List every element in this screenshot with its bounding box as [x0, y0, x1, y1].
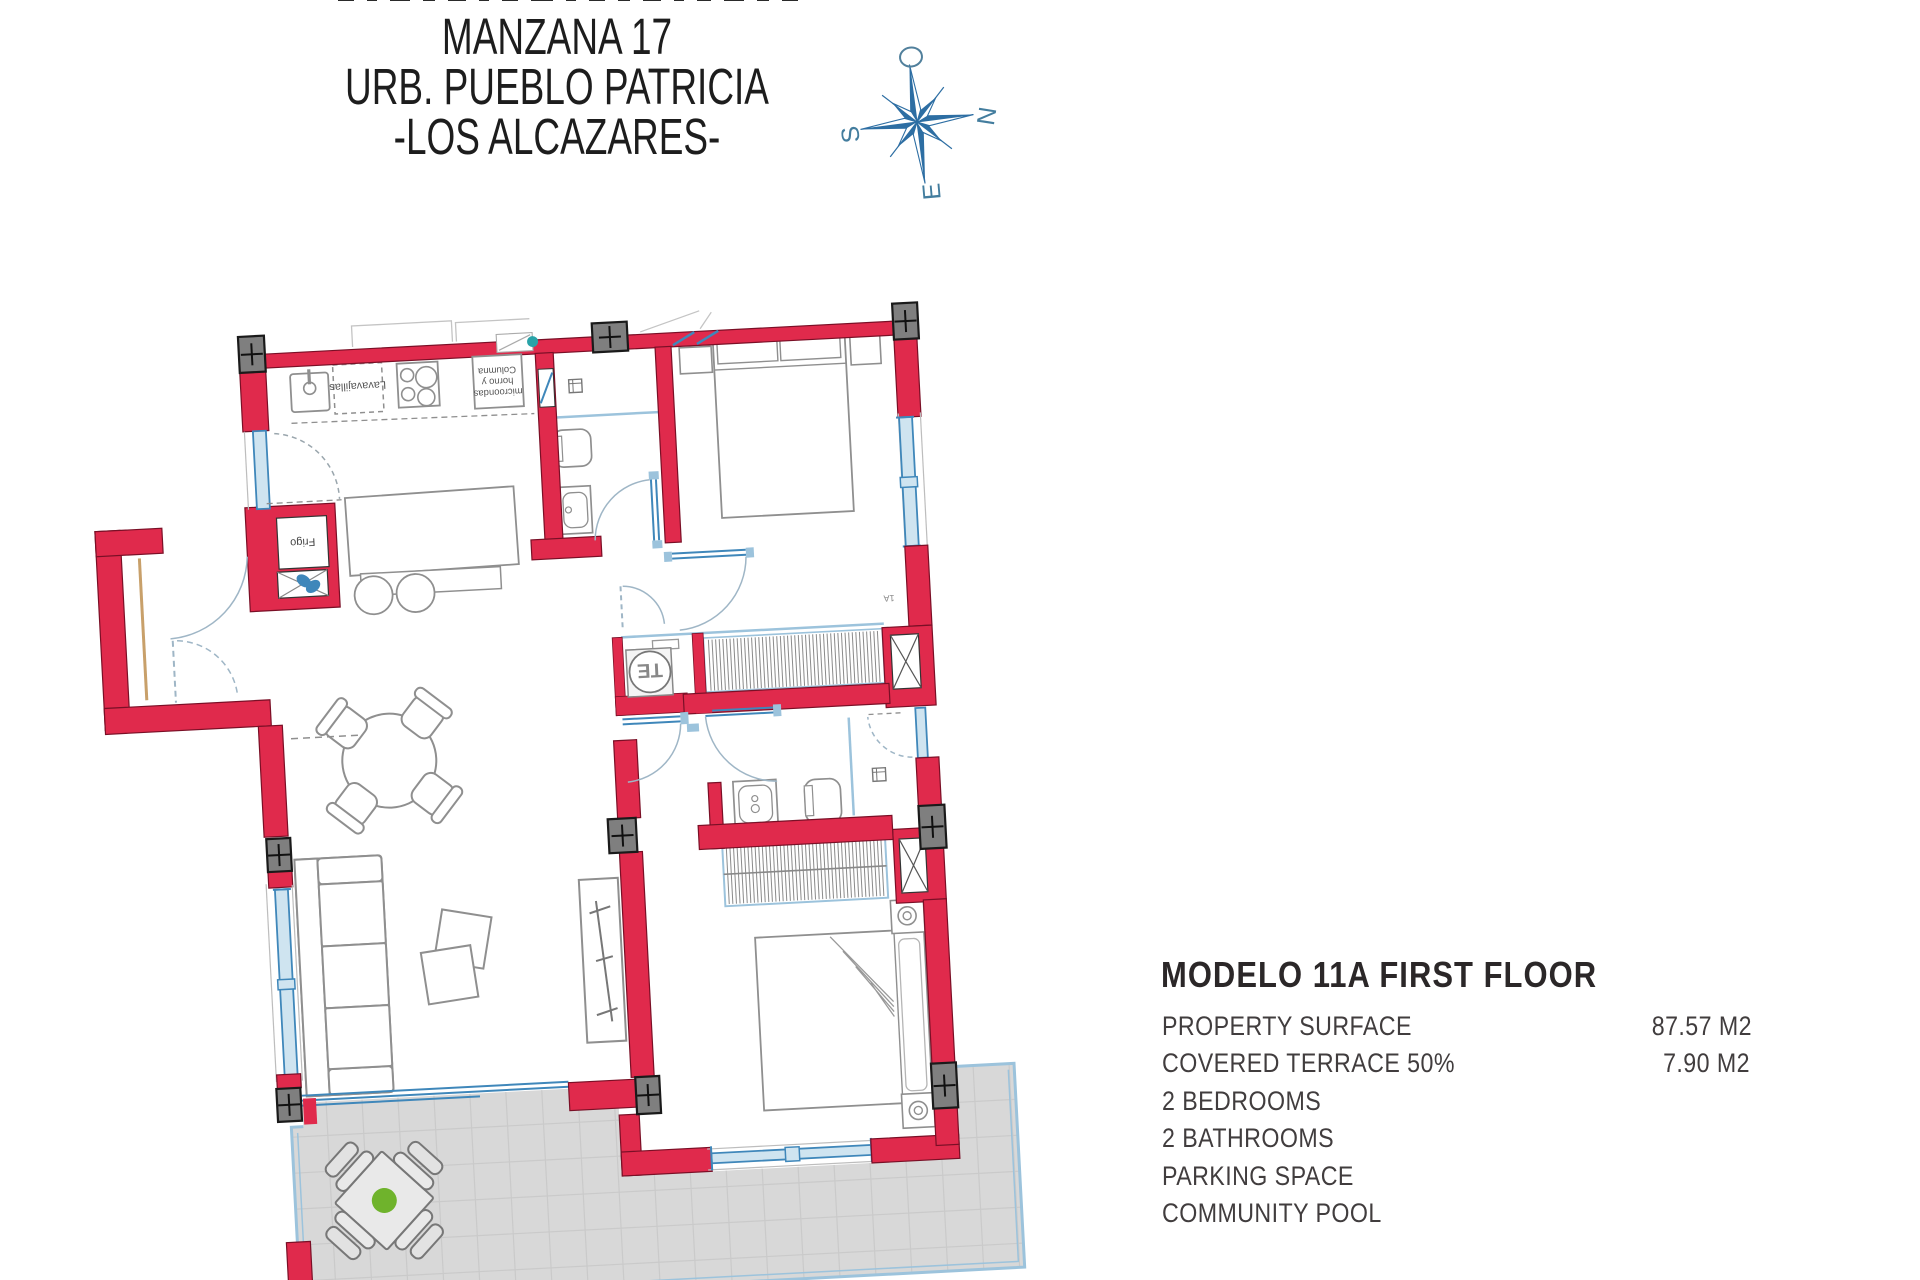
svg-text:S: S — [836, 124, 866, 145]
svg-text:1A: 1A — [883, 593, 895, 604]
svg-text:N: N — [971, 105, 1001, 127]
svg-text:Columna: Columna — [477, 363, 516, 376]
svg-text:horno y: horno y — [481, 375, 513, 388]
svg-text:TE: TE — [637, 658, 664, 681]
svg-text:Frigo: Frigo — [290, 535, 316, 548]
svg-text:E: E — [917, 182, 946, 201]
